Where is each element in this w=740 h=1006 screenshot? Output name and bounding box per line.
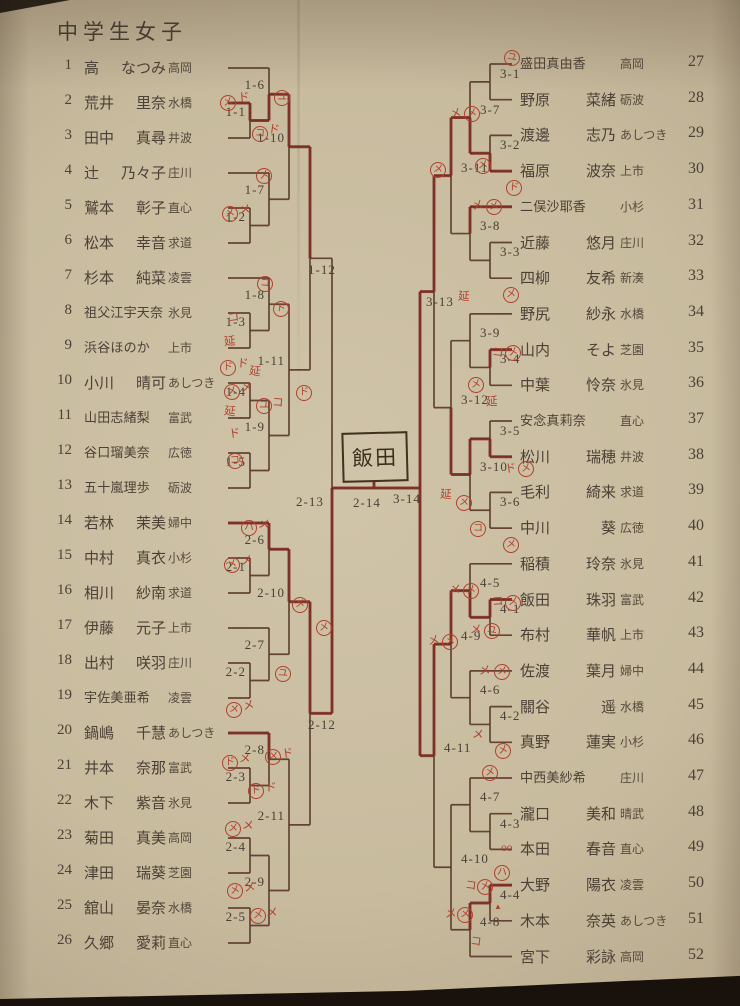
entry-number: 31 [672,196,704,214]
player-name: 松川瑞穂 [520,446,616,467]
player-name-part: 里奈 [136,92,166,113]
result-annotation: メ [241,382,253,396]
result-annotation: メ [315,619,332,636]
result-annotation: ユ [256,398,272,414]
player-name-part: 宮下 [520,946,550,967]
player-name-part: 茉美 [136,512,166,533]
match-label: 1-8 [219,287,265,303]
player-name-part: 相川 [84,582,114,603]
entry-number: 27 [672,53,704,71]
club-name: 凌雲 [620,876,644,893]
player-name: 中西美紗希 [520,767,616,786]
player-name: 木本奈英 [520,910,616,931]
player-name-part: 木下 [84,792,114,813]
player-name-part: 野原 [520,89,550,110]
club-name: 上市 [620,162,644,179]
player-name: 真野蓮実 [520,731,616,752]
result-annotation: ド [265,782,277,795]
club-name: 直心 [168,934,192,951]
result-annotation: メ [493,663,510,680]
player-name-part: 本田 [520,838,550,859]
player-name-part: 久郷 [84,932,114,953]
club-name: 広徳 [620,519,644,536]
player-name-part: 玲奈 [586,553,616,574]
club-name: 砺波 [620,91,644,108]
match-label: 3-14 [393,491,421,507]
result-annotation: ユ [483,622,501,640]
player-name-part: 友希 [586,267,616,288]
player-name-part: 田中 [84,127,114,148]
club-name: 直心 [620,412,644,429]
entry-number: 50 [672,874,704,892]
result-annotation: メ [471,199,484,213]
player-name-part: 華帆 [586,624,616,645]
player-name-part: そよ [586,339,616,360]
entry-number: 3 [44,127,72,144]
club-name: 婦中 [168,514,192,531]
club-name: 凌雲 [168,689,192,706]
player-name-part: 杉本 [84,267,114,288]
player-name-part: 津田 [84,862,114,883]
club-name: 富武 [620,591,644,608]
player-name-part: 珠羽 [586,589,616,610]
result-annotation: ド [267,123,280,137]
club-name: 晴武 [620,805,644,822]
match-label: 1-12 [308,262,336,278]
entry-number: 22 [44,792,72,809]
club-name: 新湊 [620,269,644,286]
entry-number: 40 [672,517,704,535]
entry-number: 23 [44,827,72,844]
entry-number: 49 [672,838,704,856]
club-name: あしつき [168,724,215,741]
result-annotation: メ [448,583,461,597]
match-label: 2-6 [219,532,265,548]
club-name: 高岡 [168,829,192,846]
player-name: 高なつみ [84,57,166,78]
result-annotation: メ [241,555,253,569]
player-name-part: 毛利 [520,481,550,502]
player-name-part: 飯田 [520,589,550,610]
match-label: 1-7 [219,182,265,198]
player-name: 四柳友希 [520,267,616,288]
match-label: 2-7 [219,637,265,653]
match-label: 3-8 [480,218,500,234]
result-annotation: ド [504,462,517,476]
result-annotation: 延 [223,405,236,419]
paper-crease [297,0,300,440]
result-annotation: メ [475,158,491,174]
player-name-part: 渡邊 [520,124,550,145]
photo-of-bracket-sheet: 中学生女子 1高なつみ高岡2荒井里奈水橋3田中真尋井波4辻乃々子庄川5鷲本彰子直… [0,0,740,1006]
player-name-part: 若林 [84,512,114,533]
result-annotation: メ [244,882,256,896]
player-name: 出村咲羽 [84,652,166,673]
player-name: 中村真衣 [84,547,166,568]
player-name: 關谷遥 [520,696,616,717]
match-label: 3-6 [500,494,520,510]
player-name-part: 中葉 [520,374,550,395]
player-name: 田中真尋 [84,127,166,148]
player-name: 大野陽衣 [520,874,616,895]
player-name: 津田瑞葵 [84,862,166,883]
player-name-part: 紫音 [136,792,166,813]
result-annotation: メ [494,742,512,760]
entry-number: 10 [44,372,72,389]
club-name: 高岡 [620,55,644,72]
player-name-part: 出村 [84,652,114,673]
player-name: 相川紗南 [84,582,166,603]
match-label: 4-8 [480,914,500,930]
club-name: 井波 [168,129,192,146]
club-name: 氷見 [620,555,644,572]
club-name: 求道 [168,584,192,601]
club-name: 小杉 [168,549,192,566]
player-name: 久郷愛莉 [84,932,166,953]
entry-number: 51 [672,910,704,928]
player-name: 山内そよ [520,339,616,360]
player-name-part: 菜緒 [586,89,616,110]
player-name: 二俣沙耶香 [520,196,616,215]
match-label: 2-3 [200,769,246,785]
winner-name: 飯田 [352,441,399,472]
player-name-part: 瑞葵 [136,862,166,883]
club-name: 広徳 [168,444,192,461]
result-annotation: コ [491,346,504,360]
player-name: 安念真莉奈 [520,410,616,429]
player-name: 飯田珠羽 [520,589,616,610]
club-name: あしつき [620,912,667,929]
player-name-part: 伊藤 [84,617,114,638]
entry-number: 52 [672,946,704,964]
player-name-part: 小川 [84,372,114,393]
result-annotation: メ [462,582,480,600]
match-label: 4-5 [480,575,500,591]
club-name: 庄川 [168,164,192,181]
match-label: 2-14 [353,495,381,511]
result-annotation: ド [247,782,264,799]
club-name: あしつき [620,126,667,143]
club-name: 氷見 [168,304,192,321]
result-annotation: メ [503,287,519,303]
entry-number: 42 [672,589,704,607]
result-annotation: ▲ [494,900,503,914]
result-annotation: メ [505,595,521,611]
player-name-part: 鍋嶋 [84,722,114,743]
result-annotation: ド [281,747,294,761]
player-name-part: 關谷 [520,696,550,717]
player-name: 中川葵 [520,517,616,538]
player-name-part: 春音 [586,838,616,859]
club-name: 水橋 [620,305,644,322]
result-annotation: コ [470,521,486,537]
player-name: 中葉怜奈 [520,374,616,395]
player-name: 舘山晏奈 [84,897,166,918]
result-annotation: ド [237,358,249,372]
entry-number: 14 [44,512,72,529]
result-annotation: メ [471,728,484,742]
entry-number: 20 [44,722,72,739]
player-name: 近藤悠月 [520,232,616,253]
result-annotation: メ [292,597,308,613]
result-annotation: 延 [440,489,452,503]
player-name: 山田志緒梨 [84,407,166,426]
result-annotation: ド [228,427,241,441]
entry-number: 21 [44,757,72,774]
club-name: 小杉 [620,733,644,750]
result-annotation: メ [456,906,473,923]
entry-number: 8 [44,302,72,319]
result-annotation: メ [485,198,502,215]
player-name: 本田春音 [520,838,616,859]
player-name-part: 元子 [136,617,166,638]
player-name-part: 彩詠 [586,946,616,967]
match-label: 1-6 [219,77,265,93]
entry-number: 13 [44,477,72,494]
match-label: 4-11 [444,740,471,756]
club-name: 庄川 [620,769,644,786]
club-name: 直心 [168,199,192,216]
player-name-part: 大野 [520,874,550,895]
result-annotation: ユ [503,49,521,67]
player-name-part: 福原 [520,160,550,181]
club-name: 氷見 [168,794,192,811]
entry-number: 19 [44,687,72,704]
result-annotation: 延 [486,396,498,409]
player-name-part: 奈英 [586,910,616,931]
result-annotation: ド [505,179,522,196]
player-name-part: 稲積 [520,553,550,574]
player-name: 井本奈那 [84,757,166,778]
match-label: 2-12 [308,717,336,733]
winner-box: 飯田 [341,431,408,483]
match-label: 3-9 [480,325,500,341]
tournament-sheet: 中学生女子 1高なつみ高岡2荒井里奈水橋3田中真尋井波4辻乃々子庄川5鷲本彰子直… [0,0,740,1006]
result-annotation: メ [502,536,519,553]
entry-number: 33 [672,267,704,285]
player-name-part: 木本 [520,910,550,931]
player-name-part: 瀧口 [520,803,550,824]
club-name: 直心 [620,840,644,857]
player-name: 谷口瑠美奈 [84,442,166,461]
match-label: 2-2 [200,664,246,680]
player-name-part: 瑞穂 [586,446,616,467]
player-name-part: 波奈 [586,160,616,181]
entry-number: 4 [44,162,72,179]
result-annotation: ハ [493,864,510,881]
entry-number: 7 [44,267,72,284]
result-annotation: メ [427,634,440,648]
result-annotation: ド [220,360,236,376]
entry-number: 25 [44,897,72,914]
club-name: 水橋 [168,899,192,916]
club-name: 上市 [168,339,192,356]
club-name: 庄川 [620,234,644,251]
result-annotation: メ [429,161,447,179]
player-name-part: 乃々子 [121,162,166,183]
entry-number: 16 [44,582,72,599]
match-label: 3-7 [480,102,500,118]
player-name-part: 奈那 [136,757,166,778]
entry-number: 29 [672,124,704,142]
club-name: 上市 [168,619,192,636]
page-title: 中学生女子 [57,16,187,46]
player-name-part: 晏奈 [136,897,166,918]
player-name-part: 野尻 [520,303,550,324]
player-name-part: 鷲本 [84,197,114,218]
entry-number: 32 [672,232,704,250]
result-annotation: メ [455,494,473,512]
player-name: 毛利綺来 [520,481,616,502]
match-label: 3-5 [500,423,520,439]
club-name: 芝園 [168,864,192,881]
player-name-part: 葉月 [586,660,616,681]
entry-number: 28 [672,89,704,107]
club-name: 上市 [620,626,644,643]
player-name: 菊田真美 [84,827,166,848]
entry-number: 17 [44,617,72,634]
player-name-part: 美和 [586,803,616,824]
match-label: 4-10 [461,851,489,867]
player-name-part: 真美 [136,827,166,848]
player-name-part: 辻 [84,162,99,183]
player-name-part: 悠月 [586,232,616,253]
player-name: 五十嵐理歩 [84,477,166,496]
entry-number: 43 [672,624,704,642]
player-name-part: 怜奈 [586,374,616,395]
match-label: 3-12 [461,392,489,408]
player-name: 松本幸音 [84,232,166,253]
entry-number: 2 [44,92,72,109]
entry-number: 6 [44,232,72,249]
player-name-part: 舘山 [84,897,114,918]
club-name: 砺波 [168,479,192,496]
entry-number: 26 [44,932,72,949]
entry-number: 5 [44,197,72,214]
match-label: 3-2 [500,137,520,153]
player-name-part: 葵 [601,517,616,538]
entry-number: 35 [672,339,704,357]
player-name-part: 綺来 [586,481,616,502]
player-name-part: 高 [84,57,99,78]
result-annotation: メ [250,908,266,924]
player-name-part: 井本 [84,757,114,778]
player-name: 盛田真由香 [520,53,616,72]
player-name: 鷲本彰子 [84,197,166,218]
entry-number: 48 [672,803,704,821]
club-name: 求道 [620,483,644,500]
match-label: 3-1 [500,66,520,82]
player-name: 布村華帆 [520,624,616,645]
player-name: 福原波奈 [520,160,616,181]
result-annotation: ド [222,755,238,771]
result-annotation: メ [225,701,243,719]
player-name-part: 中川 [520,517,550,538]
player-name: 瀧口美和 [520,803,616,824]
player-name-part: 真野 [520,731,550,752]
match-label: 3-3 [500,244,520,260]
result-annotation: コ [227,311,240,325]
result-annotation: メ [463,105,480,122]
entry-number: 34 [672,303,704,321]
entry-number: 9 [44,337,72,354]
player-name: 若林茉美 [84,512,166,533]
match-label: 2-13 [296,494,324,510]
result-annotation: メ [479,665,491,678]
match-label: 2-5 [200,909,246,925]
player-name: 野原菜緒 [520,89,616,110]
entry-number: 11 [44,407,72,424]
match-label: 3-13 [426,294,454,310]
player-name-part: 荒井 [84,92,114,113]
result-annotation: メ [449,107,462,121]
entry-number: 47 [672,767,704,785]
club-name: 富武 [168,759,192,776]
club-name: 凌雲 [168,269,192,286]
entry-number: 12 [44,442,72,459]
entry-number: 44 [672,660,704,678]
club-name: 富武 [168,409,192,426]
result-annotation: メ [445,908,457,921]
club-name: 芝園 [620,341,644,358]
entry-number: 37 [672,410,704,428]
player-name: 辻乃々子 [84,162,166,183]
entry-number: 39 [672,481,704,499]
result-annotation: ド [238,92,250,106]
player-name: 鍋嶋千慧 [84,722,166,743]
result-annotation: コ [492,596,504,610]
player-name-part: 千慧 [136,722,166,743]
entry-number: 1 [44,57,72,74]
player-name: 浜谷ほのか [84,337,166,356]
match-label: 4-4 [500,887,520,903]
player-name-part: 蓮実 [586,731,616,752]
player-name-part: 松本 [84,232,114,253]
player-name-part: 真衣 [136,547,166,568]
match-label: 4-3 [500,816,520,832]
club-name: 氷見 [620,376,644,393]
entry-number: 41 [672,553,704,571]
result-annotation: ド [272,300,290,318]
result-annotation: メ [239,204,251,217]
result-annotation: ユ [274,665,291,682]
player-name-part: 中村 [84,547,114,568]
player-name-part: 紗南 [136,582,166,603]
match-label: 4-7 [480,789,500,805]
club-name: 井波 [620,448,644,465]
club-name: 婦中 [620,662,644,679]
entry-number: 18 [44,652,72,669]
match-label: 1-9 [219,419,265,435]
result-annotation: メ [470,624,482,638]
player-name-part: 晴可 [136,372,166,393]
player-name-part: なつみ [121,57,166,78]
match-label: 2-4 [200,839,246,855]
player-name-part: 彰子 [136,197,166,218]
result-annotation: メ [266,907,278,921]
club-name: 水橋 [620,698,644,715]
player-name: 木下紫音 [84,792,166,813]
club-name: 小杉 [620,198,644,215]
result-annotation: コ [469,935,482,949]
player-name: 佐渡葉月 [520,660,616,681]
result-annotation: 延 [224,336,236,350]
entry-number: 45 [672,696,704,714]
player-name-part: 菊田 [84,827,114,848]
player-name-part: 佐渡 [520,660,550,681]
player-name: 宇佐美亜希 [84,687,166,706]
player-name-part: 四柳 [520,267,550,288]
